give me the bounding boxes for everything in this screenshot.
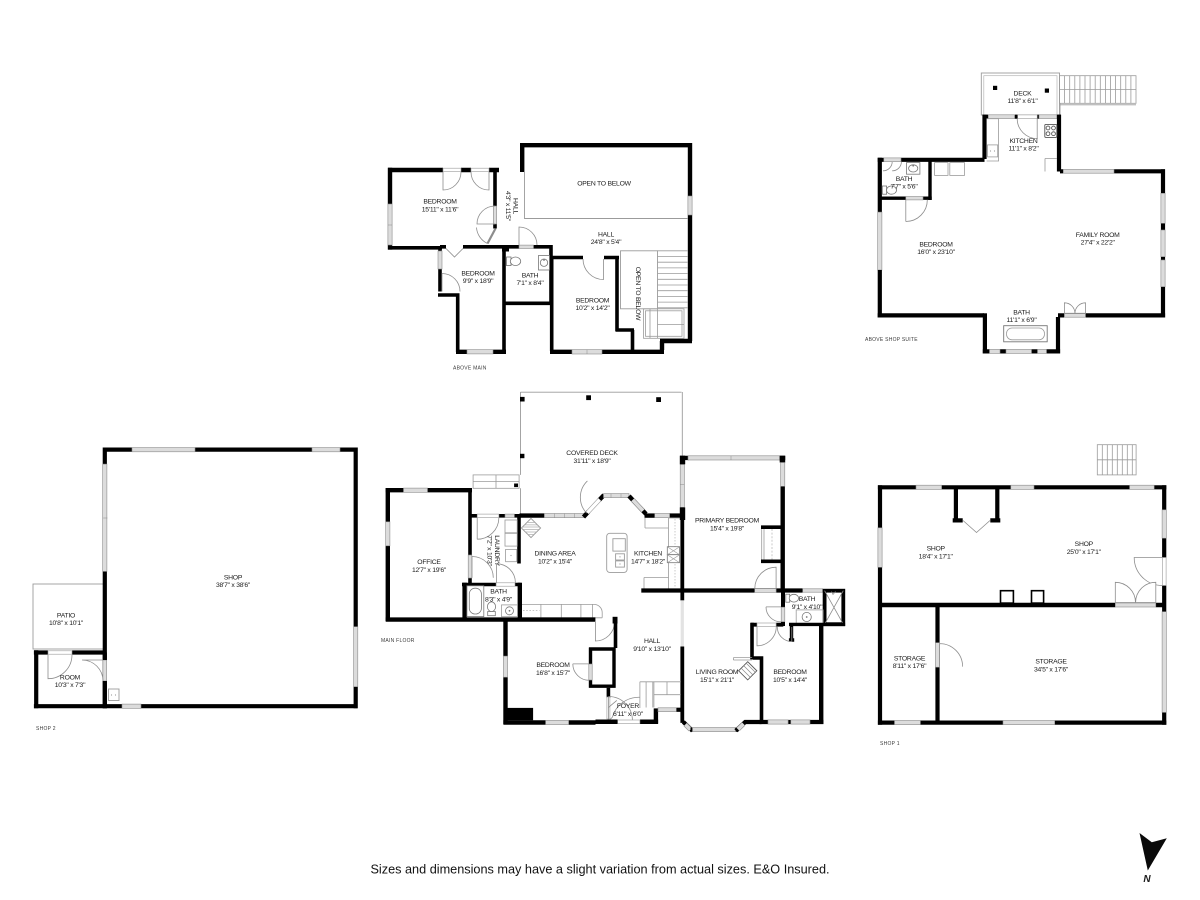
svg-text:KITCHEN: KITCHEN — [634, 551, 662, 558]
svg-text:24'8" x 5'4": 24'8" x 5'4" — [591, 239, 622, 246]
svg-text:10'2" x 14'2": 10'2" x 14'2" — [575, 305, 610, 312]
svg-text:PRIMARY BEDROOM: PRIMARY BEDROOM — [695, 517, 760, 524]
svg-text:12'7" x 19'6": 12'7" x 19'6" — [412, 567, 447, 574]
svg-text:N: N — [1143, 874, 1151, 885]
svg-text:SHOP 2: SHOP 2 — [36, 726, 56, 732]
svg-text:HALL: HALL — [598, 232, 614, 239]
svg-text:10'2" x 15'4": 10'2" x 15'4" — [538, 559, 573, 566]
svg-text:7'7" x 5'6": 7'7" x 5'6" — [891, 184, 919, 191]
svg-text:16'0" x 23'10": 16'0" x 23'10" — [917, 249, 955, 256]
svg-text:OPEN TO BELOW: OPEN TO BELOW — [634, 267, 641, 321]
svg-text:27'4" x 22'2": 27'4" x 22'2" — [1081, 239, 1116, 246]
svg-text:BEDROOM: BEDROOM — [773, 669, 807, 676]
svg-text:BATH: BATH — [799, 596, 816, 603]
svg-text:15'11" x 11'6": 15'11" x 11'6" — [422, 207, 459, 214]
svg-text:STORAGE: STORAGE — [1035, 659, 1067, 666]
svg-text:10'8" x 10'1": 10'8" x 10'1" — [49, 620, 84, 627]
svg-text:ABOVE MAIN: ABOVE MAIN — [453, 366, 487, 372]
svg-text:11'8" x 6'1": 11'8" x 6'1" — [1008, 98, 1039, 105]
svg-text:BEDROOM: BEDROOM — [576, 298, 610, 305]
svg-text:BEDROOM: BEDROOM — [461, 271, 495, 278]
svg-text:PATIO: PATIO — [57, 613, 75, 620]
svg-text:15'4" x 19'8": 15'4" x 19'8" — [710, 526, 745, 533]
svg-text:DINING AREA: DINING AREA — [534, 551, 576, 558]
svg-text:SHOP: SHOP — [927, 546, 946, 553]
svg-text:8'11" x 17'6": 8'11" x 17'6" — [893, 663, 927, 670]
svg-text:9'9" x 18'9": 9'9" x 18'9" — [463, 278, 494, 285]
svg-text:STORAGE: STORAGE — [894, 655, 926, 662]
svg-text:6'11" x 6'0": 6'11" x 6'0" — [613, 711, 644, 718]
svg-text:11'1" x 8'2": 11'1" x 8'2" — [1009, 146, 1040, 153]
svg-text:38'7" x 38'6": 38'7" x 38'6" — [216, 582, 251, 589]
svg-text:COVERED DECK: COVERED DECK — [566, 450, 618, 457]
svg-text:BATH: BATH — [490, 588, 507, 595]
svg-text:11'1" x 6'9": 11'1" x 6'9" — [1007, 317, 1038, 324]
svg-text:4'3" x 11'5": 4'3" x 11'5" — [504, 191, 511, 222]
svg-text:34'5" x 17'6": 34'5" x 17'6" — [1034, 667, 1069, 674]
svg-text:HALL: HALL — [644, 638, 660, 645]
svg-text:SHOP 1: SHOP 1 — [880, 741, 900, 747]
svg-text:DECK: DECK — [1014, 91, 1033, 98]
svg-text:BATH: BATH — [896, 176, 913, 183]
svg-text:MAIN FLOOR: MAIN FLOOR — [381, 638, 415, 644]
svg-text:LIVING ROOM: LIVING ROOM — [696, 669, 739, 676]
svg-text:31'11" x 18'9": 31'11" x 18'9" — [573, 458, 611, 465]
svg-text:Sizes and dimensions may have: Sizes and dimensions may have a slight v… — [370, 863, 829, 877]
svg-text:FAMILY ROOM: FAMILY ROOM — [1076, 232, 1120, 239]
svg-text:16'8" x 15'7": 16'8" x 15'7" — [536, 670, 571, 677]
svg-text:7'1" x 8'4": 7'1" x 8'4" — [517, 280, 545, 287]
svg-text:OFFICE: OFFICE — [417, 559, 441, 566]
svg-text:BEDROOM: BEDROOM — [919, 242, 953, 249]
svg-text:FOYER: FOYER — [617, 703, 640, 710]
svg-text:SHOP: SHOP — [1075, 541, 1094, 548]
svg-text:SHOP: SHOP — [224, 575, 243, 582]
svg-text:BEDROOM: BEDROOM — [536, 662, 570, 669]
svg-text:18'4" x 17'1": 18'4" x 17'1" — [919, 554, 954, 561]
svg-text:7'2" x 10'3": 7'2" x 10'3" — [486, 535, 493, 566]
svg-text:25'0" x 17'1": 25'0" x 17'1" — [1067, 549, 1102, 556]
svg-text:15'1" x 21'1": 15'1" x 21'1" — [700, 677, 735, 684]
svg-text:8'3" x 4'9": 8'3" x 4'9" — [485, 596, 513, 603]
svg-text:9'1" x 4'10": 9'1" x 4'10" — [792, 604, 823, 611]
svg-text:OPEN TO BELOW: OPEN TO BELOW — [577, 181, 631, 188]
svg-text:14'7" x 18'2": 14'7" x 18'2" — [631, 559, 666, 566]
svg-text:KITCHEN: KITCHEN — [1009, 138, 1037, 145]
svg-text:10'5" x 14'4": 10'5" x 14'4" — [773, 677, 808, 684]
svg-text:10'3" x 7'3": 10'3" x 7'3" — [55, 682, 86, 689]
svg-text:HALL: HALL — [512, 198, 519, 214]
svg-text:9'10" x 13'10": 9'10" x 13'10" — [633, 646, 671, 653]
svg-text:LAUNDRY: LAUNDRY — [493, 535, 500, 566]
svg-text:ABOVE SHOP SUITE: ABOVE SHOP SUITE — [865, 337, 918, 343]
svg-text:ROOM: ROOM — [60, 675, 81, 682]
svg-text:BEDROOM: BEDROOM — [423, 199, 457, 206]
svg-text:BATH: BATH — [522, 273, 539, 280]
svg-text:BATH: BATH — [1013, 309, 1030, 316]
